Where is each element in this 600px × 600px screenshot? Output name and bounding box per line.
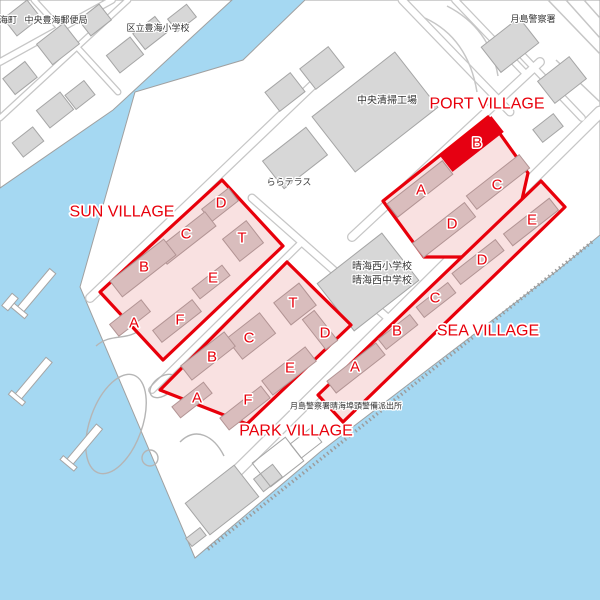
- place-label-4: 中央清掃工場: [357, 94, 417, 107]
- village-label-park: PARK VILLAGE: [239, 423, 353, 440]
- building-label-sun-f: F: [175, 312, 184, 329]
- building-label-sun-a: A: [129, 315, 139, 332]
- building-label-port-a: A: [416, 182, 426, 199]
- building-label-park-f: F: [243, 392, 252, 409]
- building-label-sun-d: D: [216, 195, 227, 212]
- place-label-0: 海町: [0, 14, 17, 25]
- building-label-park-b: B: [207, 349, 217, 366]
- building-label-park-t: T: [288, 295, 297, 312]
- building-label-sun-c: C: [181, 226, 192, 243]
- building-label-sea-b: B: [392, 323, 402, 340]
- building-label-park-d: D: [320, 325, 331, 342]
- building-label-sun-b: B: [139, 259, 149, 276]
- building-label-sea-d: D: [477, 252, 488, 269]
- building-label-park-e: E: [285, 360, 295, 377]
- place-label-7: 晴海西中学校: [352, 274, 412, 287]
- place-label-6: 晴海西小学校: [352, 260, 412, 273]
- place-label-8: 月島警察署晴海埠頭警備派出所: [290, 401, 402, 411]
- map-page: ABCDPORT VILLAGEDCTBEAFSUN VILLAGETCDBEA…: [0, 0, 600, 600]
- village-label-port: PORT VILLAGE: [429, 96, 544, 113]
- building-label-sea-a: A: [350, 359, 360, 376]
- place-label-3: 月島警察署: [510, 13, 555, 24]
- place-label-1: 中央豊海郵便局: [24, 14, 87, 25]
- building-label-sea-c: C: [430, 290, 441, 307]
- village-label-sea: SEA VILLAGE: [437, 323, 539, 340]
- building-label-park-a: A: [192, 390, 202, 407]
- building-label-port-d: D: [447, 216, 458, 233]
- place-label-2: 区立豊海小学校: [126, 22, 189, 33]
- building-label-sea-e: E: [527, 212, 537, 229]
- village-label-sun: SUN VILLAGE: [70, 204, 175, 221]
- building-label-sun-t: T: [237, 230, 246, 247]
- building-label-port-b: B: [472, 135, 482, 152]
- building-label-port-c: C: [492, 177, 503, 194]
- place-label-5: ららテラス: [267, 177, 312, 187]
- map-svg: ABCDPORT VILLAGEDCTBEAFSUN VILLAGETCDBEA…: [0, 0, 600, 600]
- building-label-sun-e: E: [208, 270, 218, 287]
- building-label-park-c: C: [244, 330, 255, 347]
